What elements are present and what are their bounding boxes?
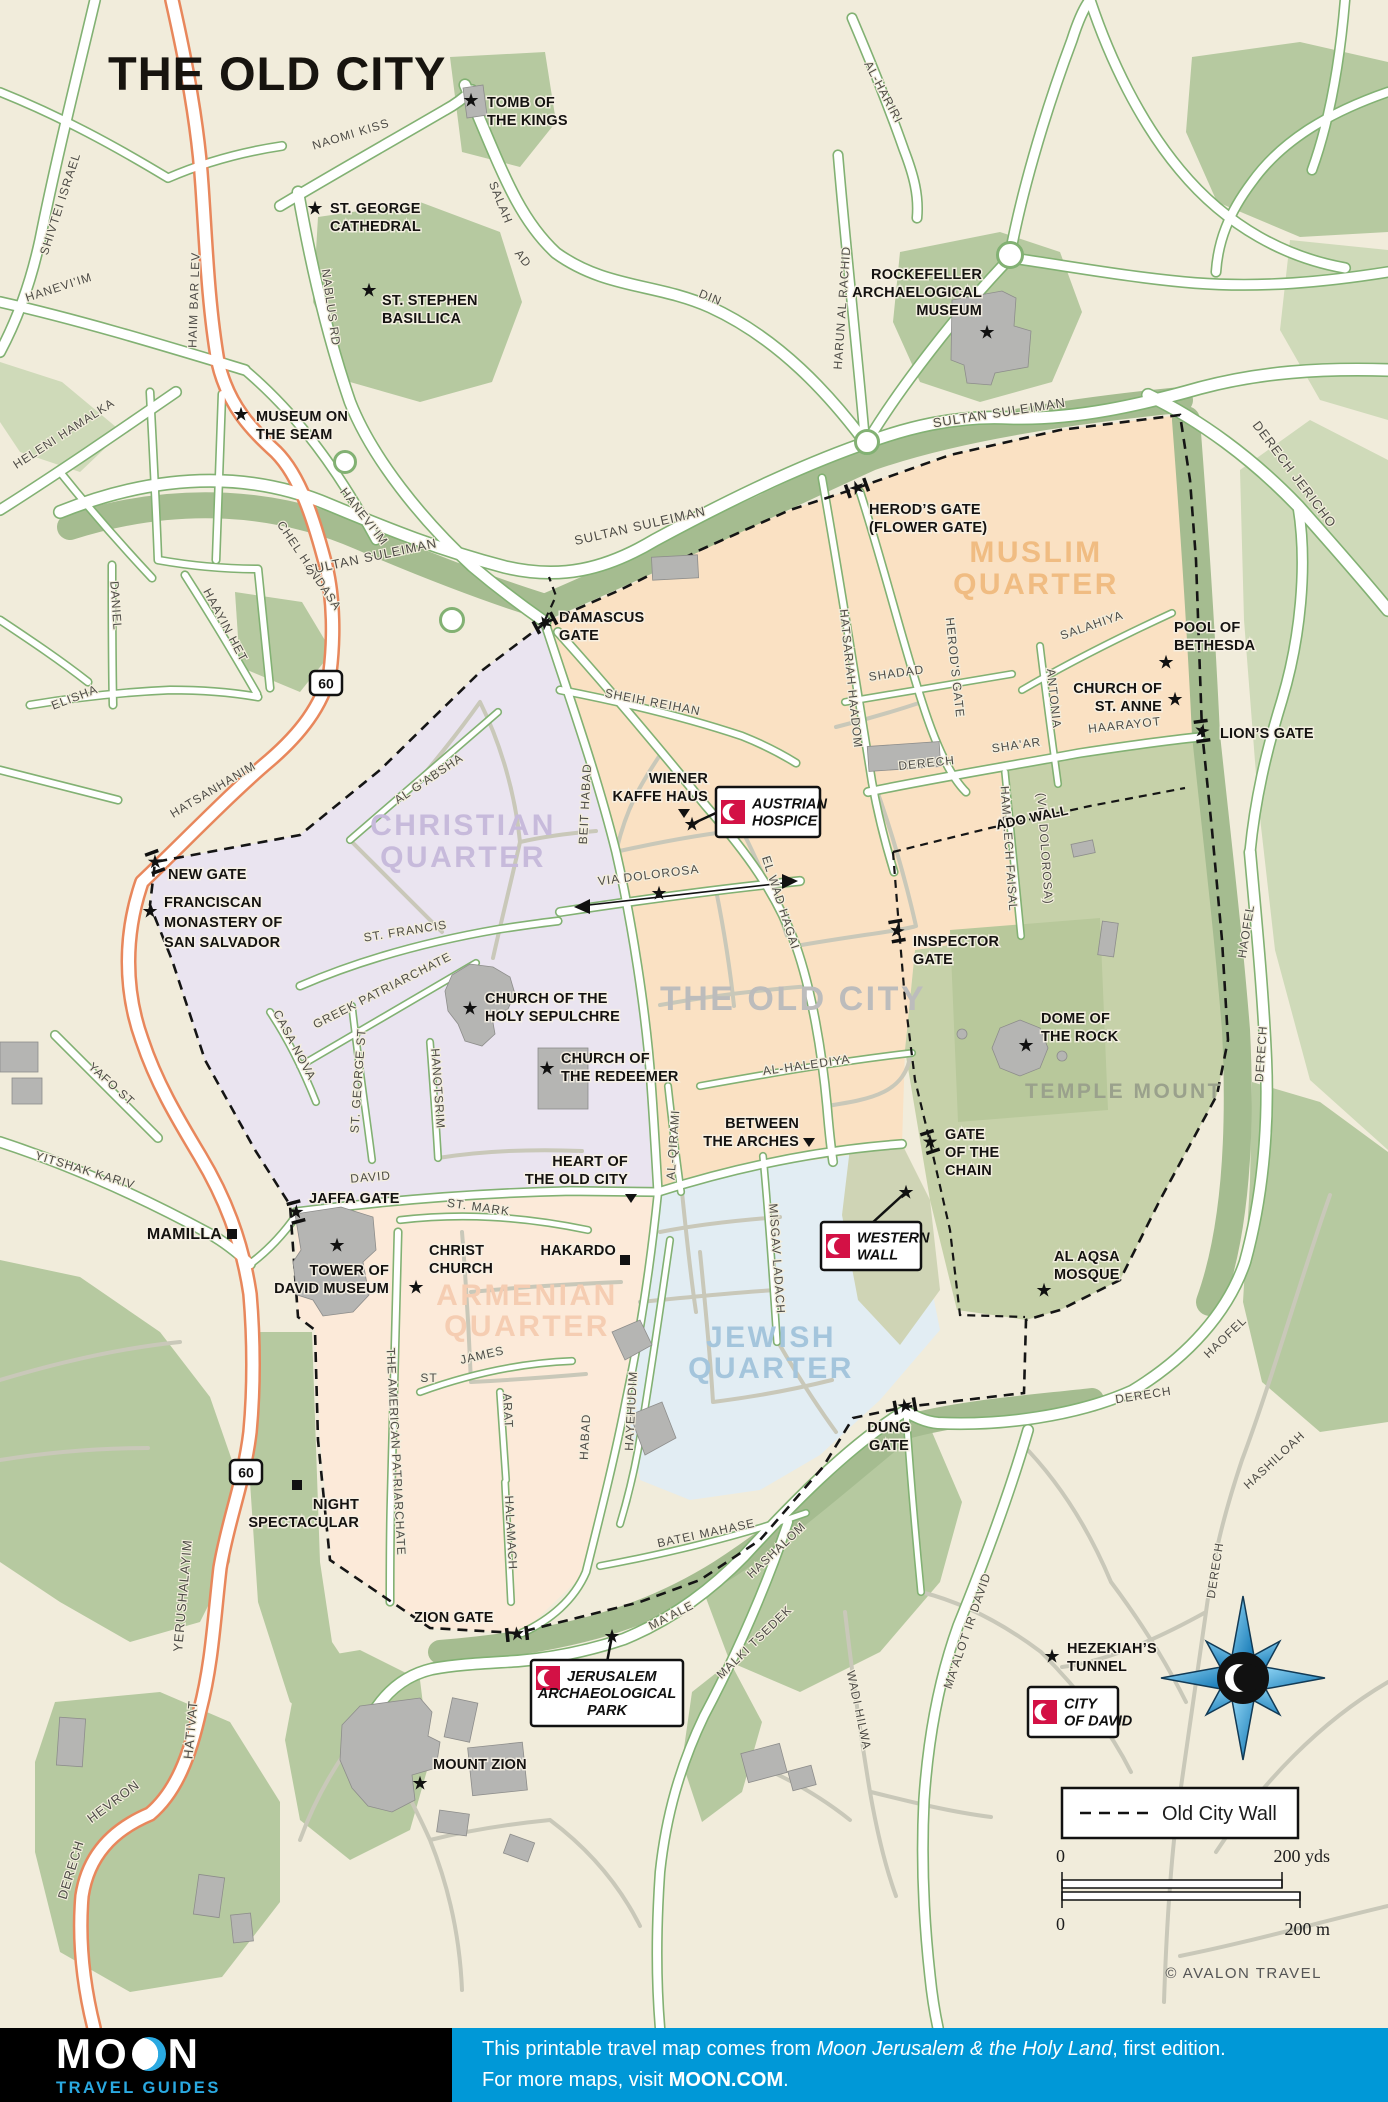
star-icon: ★ xyxy=(306,198,323,220)
star-icon: ★ xyxy=(328,1235,345,1257)
moon-com-text: MOON.COM xyxy=(669,2069,783,2091)
star-icon: ★ xyxy=(1157,652,1174,674)
poi-label: HAKARDO xyxy=(540,1243,616,1259)
area-label-muslim-quarter: MUSLIMQUARTER xyxy=(953,536,1119,601)
square-icon xyxy=(292,1480,302,1490)
star-icon: ★ xyxy=(978,322,995,344)
star-icon: ★ xyxy=(360,280,377,302)
credit-text: For more maps, visit xyxy=(482,2069,669,2091)
logo-text-prefix: MO xyxy=(56,2033,130,2075)
star-icon: ★ xyxy=(683,814,700,836)
svg-text:60: 60 xyxy=(318,676,334,692)
copyright: © AVALON TRAVEL xyxy=(1165,1965,1322,1982)
svg-text:PARK: PARK xyxy=(587,1703,629,1719)
poi-label: MOUNT ZION xyxy=(433,1757,527,1773)
legend-label: Old City Wall xyxy=(1162,1803,1277,1825)
footer-credit-line1: This printable travel map comes from Moo… xyxy=(482,2034,1388,2065)
star-icon: ★ xyxy=(461,998,478,1020)
moon-logo-word: MON xyxy=(56,2033,452,2075)
poi-jaffa-gate: JAFFA GATE xyxy=(309,1191,400,1207)
moon-logo: MON TRAVEL GUIDES xyxy=(0,2028,452,2102)
square-icon xyxy=(620,1255,630,1265)
star-icon: ★ xyxy=(1017,1035,1034,1057)
map-canvas: MUSLIMQUARTERCHRISTIANQUARTERARMENIANQUA… xyxy=(0,0,1388,2028)
map-title-group: THE OLD CITY xyxy=(108,47,446,100)
map-copyright: © AVALON TRAVEL xyxy=(1165,1965,1322,1982)
street-label-st: ST xyxy=(420,1371,437,1385)
poi-label: JAFFA GATE xyxy=(309,1191,400,1207)
area-label-the-old-city: THE OLD CITY xyxy=(660,980,926,1018)
scale-zero-yds: 0 xyxy=(1056,1846,1065,1866)
legend-box: Old City Wall xyxy=(1062,1788,1298,1838)
svg-text:CITY: CITY xyxy=(1064,1697,1098,1713)
moon-logo-o-icon xyxy=(132,2037,166,2071)
poi-new-gate: NEW GATE xyxy=(168,867,247,883)
star-icon: ★ xyxy=(411,1773,428,1795)
area-label-christian-quarter: CHRISTIANQUARTER xyxy=(370,809,556,874)
street-label-habad: HABAD xyxy=(577,1413,593,1460)
moon-logo-tagline: TRAVEL GUIDES xyxy=(56,2079,452,2098)
svg-text:HOSPICE: HOSPICE xyxy=(752,814,819,830)
star-icon: ★ xyxy=(603,1626,620,1648)
star-icon: ★ xyxy=(1035,1280,1052,1302)
area-label-temple-mount: TEMPLE MOUNT xyxy=(1025,1080,1223,1103)
footer-credit: This printable travel map comes from Moo… xyxy=(452,2028,1388,2102)
credit-text: This printable travel map comes from xyxy=(482,2038,817,2060)
credit-text: . xyxy=(783,2069,789,2091)
scale-zero-m: 0 xyxy=(1056,1914,1065,1934)
map-title: THE OLD CITY xyxy=(108,47,446,100)
svg-text:WESTERN: WESTERN xyxy=(857,1231,930,1247)
star-icon: ★ xyxy=(1166,689,1183,711)
svg-text:ARCHAEOLOGICAL: ARCHAEOLOGICAL xyxy=(537,1686,677,1702)
sight-badge-city-of-david: CITYOF DAVID xyxy=(1028,1687,1133,1737)
street-label-arat: ARAT xyxy=(500,1393,516,1429)
star-icon: ★ xyxy=(650,883,667,905)
star-icon: ★ xyxy=(141,901,158,923)
scale-yds: 200 yds xyxy=(1273,1846,1330,1866)
svg-text:60: 60 xyxy=(238,1465,254,1481)
poi-via-dolorosa-station: ★ xyxy=(650,883,667,905)
poi-zion-gate: ZION GATE xyxy=(414,1610,494,1626)
route-shield-60: 60 xyxy=(310,671,342,695)
poi-label: ZION GATE xyxy=(414,1610,494,1626)
star-icon: ★ xyxy=(407,1277,424,1299)
star-icon: ★ xyxy=(462,90,479,112)
svg-text:AUSTRIAN: AUSTRIAN xyxy=(751,797,827,813)
credit-text: , first edition. xyxy=(1112,2038,1225,2060)
route-shield-60: 60 xyxy=(230,1460,262,1484)
svg-text:OF DAVID: OF DAVID xyxy=(1064,1714,1133,1730)
area-label-jewish-quarter: JEWISHQUARTER xyxy=(688,1321,854,1385)
svg-text:★: ★ xyxy=(507,1622,526,1646)
footer-bar: MON TRAVEL GUIDES This printable travel … xyxy=(0,2028,1388,2102)
star-icon: ★ xyxy=(538,1058,555,1080)
poi-label: LION’S GATE xyxy=(1220,726,1314,742)
area-label-armenian-quarter: ARMENIANQUARTER xyxy=(436,1279,618,1343)
star-icon: ★ xyxy=(1043,1646,1060,1668)
scale-m: 200 m xyxy=(1284,1919,1330,1939)
poi-lion-s-gate: LION’S GATE xyxy=(1220,726,1314,742)
square-icon xyxy=(227,1229,237,1239)
svg-text:WALL: WALL xyxy=(857,1248,898,1264)
svg-text:JERUSALEM: JERUSALEM xyxy=(567,1669,657,1685)
star-icon: ★ xyxy=(232,404,249,426)
logo-text-suffix: N xyxy=(168,2033,201,2075)
poi-label: NEW GATE xyxy=(168,867,247,883)
book-title: Moon Jerusalem & the Holy Land xyxy=(817,2038,1113,2060)
poi-label: MAMILLA xyxy=(147,1226,222,1243)
printable-map-page: MUSLIMQUARTERCHRISTIANQUARTERARMENIANQUA… xyxy=(0,0,1388,2102)
svg-text:★: ★ xyxy=(1190,721,1214,741)
star-icon: ★ xyxy=(897,1182,914,1204)
footer-credit-line2: For more maps, visit MOON.COM. xyxy=(482,2065,1388,2096)
